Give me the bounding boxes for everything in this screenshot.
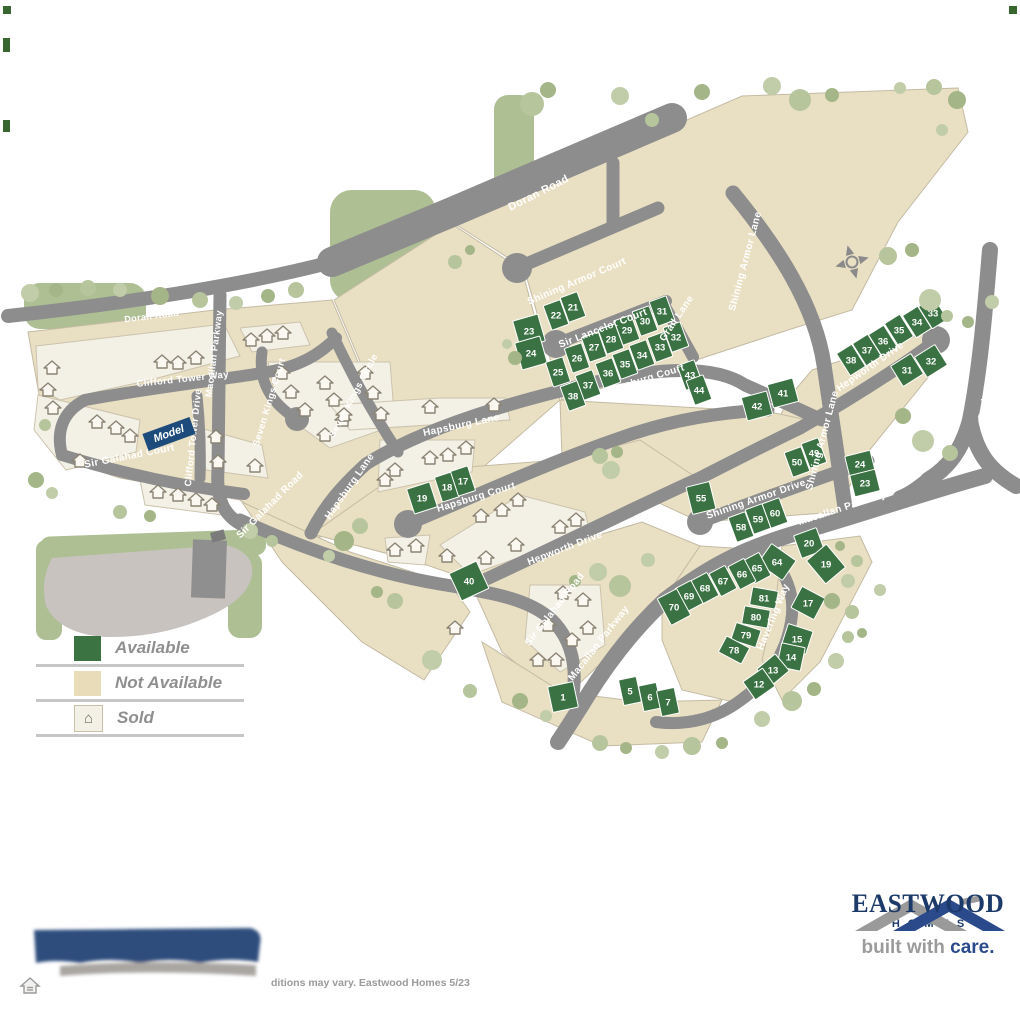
tree <box>641 553 655 567</box>
community-site-map: 2122232425262728293031323334353637384344… <box>0 0 1020 1020</box>
tree <box>592 448 608 464</box>
tree <box>463 684 477 698</box>
lot-number: 42 <box>752 402 763 413</box>
tree <box>857 628 867 638</box>
lot-number: 19 <box>417 494 428 505</box>
lot-number: 31 <box>657 307 668 318</box>
tree <box>825 88 839 102</box>
equal-housing-icon <box>21 978 39 993</box>
lot-number: 22 <box>551 311 562 322</box>
tree <box>683 737 701 755</box>
tree <box>589 563 607 581</box>
lot-number: 37 <box>862 346 873 357</box>
tree <box>192 292 208 308</box>
tree <box>21 284 39 302</box>
lot-number: 66 <box>737 570 748 581</box>
legend-row-not-available: Not Available <box>36 667 244 702</box>
tree <box>716 737 728 749</box>
lot-number: 38 <box>568 392 579 403</box>
tree <box>941 310 953 322</box>
lot-number: 38 <box>846 356 857 367</box>
tree <box>352 518 368 534</box>
tree <box>841 574 855 588</box>
tree <box>113 283 127 297</box>
tree <box>824 593 840 609</box>
lot-number: 19 <box>821 560 832 571</box>
lot-number: 24 <box>526 349 537 360</box>
lot-number: 17 <box>803 599 814 610</box>
tree <box>144 510 156 522</box>
legend-row-available: Available <box>36 632 244 667</box>
tree <box>371 586 383 598</box>
tree <box>611 446 623 458</box>
tree <box>592 735 608 751</box>
lot-number: 79 <box>741 631 752 642</box>
community-logo-obscured <box>34 928 261 976</box>
lot-number: 26 <box>572 354 583 365</box>
lot-number: 12 <box>754 680 765 691</box>
tree <box>919 289 941 311</box>
tree <box>28 472 44 488</box>
builder-logo: EASTWOOD HOMES built with care. <box>843 891 1013 957</box>
cul-de-sac <box>502 253 532 283</box>
tree <box>895 408 911 424</box>
tree <box>334 531 354 551</box>
tree <box>807 682 821 696</box>
lot-number: 13 <box>768 666 779 677</box>
lot-number: 55 <box>696 494 707 505</box>
tree <box>754 711 770 727</box>
lot-number: 21 <box>568 303 579 314</box>
cul-de-sac <box>394 510 422 538</box>
tree <box>845 605 859 619</box>
lot-number: 81 <box>759 594 770 605</box>
tree <box>611 87 629 105</box>
tree <box>620 742 632 754</box>
lot-number: 34 <box>912 318 923 329</box>
disclaimer-text: ditions may vary. Eastwood Homes 5/23 <box>271 977 470 989</box>
lot-number: 15 <box>792 635 803 646</box>
lot-number: 7 <box>665 698 670 709</box>
lot-number: 40 <box>464 577 475 588</box>
lot-number: 50 <box>792 458 803 469</box>
tree <box>879 247 897 265</box>
tree <box>962 316 974 328</box>
lot-number: 18 <box>442 483 453 494</box>
tree <box>387 593 403 609</box>
lot-number: 59 <box>753 515 764 526</box>
tree <box>540 82 556 98</box>
lot-number: 60 <box>770 509 781 520</box>
legend-label: Available <box>115 638 190 658</box>
legend-row-sold: ⌂ Sold <box>36 702 244 737</box>
site-plan-page: { "legend": { "items": [ {"key": "availa… <box>0 0 1020 1020</box>
tree <box>609 575 631 597</box>
tree <box>789 89 811 111</box>
tree <box>512 693 528 709</box>
builder-name: EASTWOOD <box>846 891 1011 917</box>
tree <box>80 280 96 296</box>
tree <box>936 124 948 136</box>
lot-number: 25 <box>553 368 564 379</box>
lot-number: 70 <box>669 603 680 614</box>
lot-number: 27 <box>589 343 600 354</box>
lot-number: 28 <box>606 335 617 346</box>
available-lot-44[interactable]: 44 <box>686 375 712 406</box>
lot-number: 80 <box>751 613 762 624</box>
lot-number: 1 <box>560 693 566 704</box>
tree <box>851 555 863 567</box>
tree <box>694 84 710 100</box>
tree <box>502 339 512 349</box>
tree <box>261 289 275 303</box>
lot-number: 44 <box>694 386 705 397</box>
tagline-gray: built with <box>861 937 950 958</box>
tree <box>540 710 552 722</box>
tree <box>323 550 335 562</box>
tree <box>229 296 243 310</box>
lot-number: 17 <box>458 477 469 488</box>
lot-number: 23 <box>860 479 871 490</box>
tree <box>985 295 999 309</box>
tree <box>422 650 442 670</box>
available-lot-1[interactable]: 1 <box>548 682 579 713</box>
builder-tagline: built with care. <box>843 938 1013 957</box>
legend-label: Sold <box>117 708 154 728</box>
tree <box>942 445 958 461</box>
lot-number: 64 <box>772 558 783 569</box>
lot-number: 68 <box>700 584 711 595</box>
lot-number: 20 <box>804 539 815 550</box>
tree <box>151 287 169 305</box>
tree <box>39 419 51 431</box>
lot-number: 41 <box>778 389 789 400</box>
lot-number: 65 <box>752 564 763 575</box>
tree <box>905 243 919 257</box>
legend: Available Not Available ⌂ Sold <box>36 632 244 737</box>
lot-number: 34 <box>637 351 648 362</box>
lot-number: 24 <box>855 460 866 471</box>
tree <box>520 92 544 116</box>
tree <box>782 691 802 711</box>
tree <box>894 82 906 94</box>
sold-swatch-house-icon: ⌂ <box>74 705 103 732</box>
lot-number: 58 <box>736 523 747 534</box>
lot-number: 78 <box>729 646 740 657</box>
tree <box>835 541 845 551</box>
lot-number: 33 <box>655 343 666 354</box>
tree <box>448 255 462 269</box>
tagline-blue: care. <box>950 937 994 958</box>
tree <box>266 535 278 547</box>
lot-number: 14 <box>786 653 797 664</box>
tree <box>645 113 659 127</box>
lot-number: 35 <box>620 360 631 371</box>
tree <box>602 461 620 479</box>
lot-number: 67 <box>718 577 729 588</box>
tree <box>763 77 781 95</box>
tree <box>49 283 63 297</box>
tree <box>655 745 669 759</box>
tree <box>948 91 966 109</box>
lot-number: 36 <box>878 337 889 348</box>
tree <box>113 505 127 519</box>
lot-number: 37 <box>583 381 594 392</box>
tree <box>828 653 844 669</box>
lot-number: 29 <box>622 326 633 337</box>
tree <box>46 487 58 499</box>
lot-number: 31 <box>902 366 913 377</box>
lot-number: 23 <box>524 327 535 338</box>
tree <box>288 282 304 298</box>
available-swatch <box>74 636 101 661</box>
legend-label: Not Available <box>115 673 222 693</box>
not-available-swatch <box>74 671 101 696</box>
lot-number: 5 <box>627 687 633 698</box>
tree <box>874 584 886 596</box>
lot-number: 69 <box>684 592 695 603</box>
lot-number: 32 <box>926 357 937 368</box>
lot-number: 36 <box>603 369 614 380</box>
tree <box>926 79 942 95</box>
tree <box>508 351 522 365</box>
lot-number: 35 <box>894 326 905 337</box>
tree <box>842 631 854 643</box>
lot-number: 6 <box>647 693 652 704</box>
tree <box>465 245 475 255</box>
tree <box>912 430 934 452</box>
